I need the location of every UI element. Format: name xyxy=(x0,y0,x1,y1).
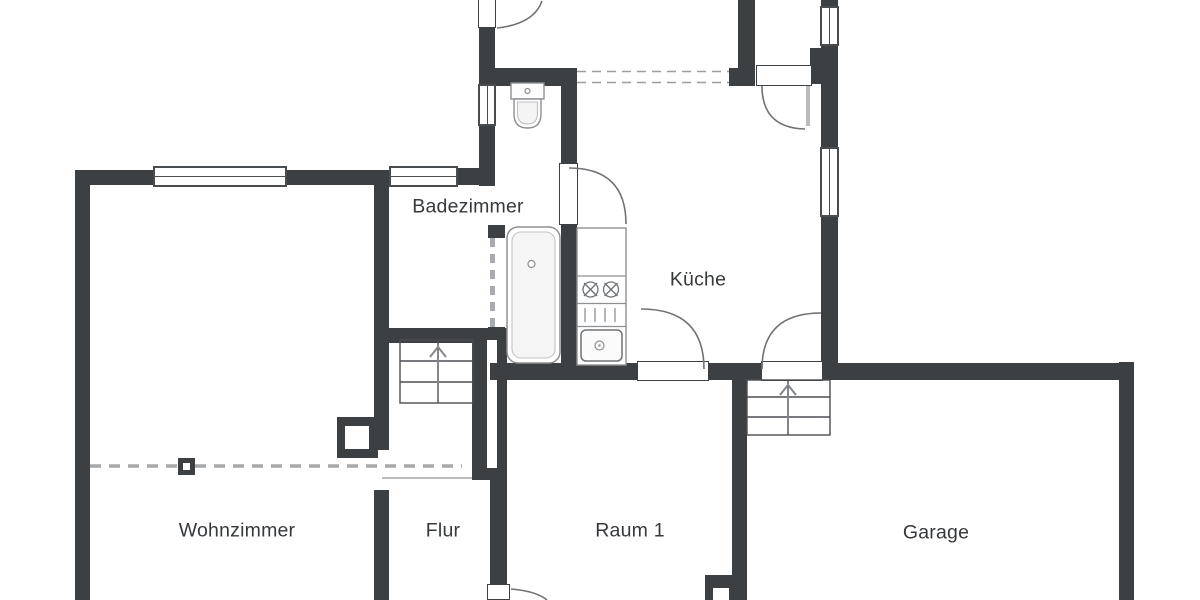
wall-segment xyxy=(75,170,155,185)
chimney-flue xyxy=(345,426,369,449)
wall-segment xyxy=(1119,362,1134,600)
window xyxy=(153,166,287,187)
kitchen-counter xyxy=(577,228,626,365)
room-label-kueche: Küche xyxy=(670,269,726,292)
open-wall-dashes xyxy=(577,72,729,83)
window xyxy=(820,6,839,46)
wall-segment xyxy=(561,225,577,365)
door-leaf xyxy=(637,361,709,381)
room-label-raum1: Raum 1 xyxy=(595,520,664,543)
wall-segment xyxy=(374,490,389,600)
door-leaf xyxy=(559,163,578,225)
room-label-wohnzimmer: Wohnzimmer xyxy=(179,520,296,543)
wall-segment xyxy=(810,48,838,84)
wall-segment xyxy=(490,363,640,380)
room-label-badezimmer: Badezimmer xyxy=(412,196,523,219)
staircase-garage xyxy=(747,380,830,435)
wall-segment xyxy=(561,68,577,165)
wall-segment xyxy=(822,363,1133,380)
window xyxy=(478,84,496,126)
toilet xyxy=(511,83,544,128)
wall-segment xyxy=(738,0,755,84)
wall-cavity xyxy=(487,340,497,468)
drainer-lines xyxy=(585,308,615,322)
open-door-leaf xyxy=(806,86,810,126)
kitchen-sink xyxy=(581,330,622,361)
room-label-garage: Garage xyxy=(903,522,969,545)
wall-segment xyxy=(490,480,507,586)
staircase-flur xyxy=(400,340,473,403)
partition-block xyxy=(488,225,505,238)
door-arcs xyxy=(497,1,821,600)
door-leaf xyxy=(761,361,823,381)
room-label-flur: Flur xyxy=(426,520,460,543)
support-column-core xyxy=(183,463,190,470)
wall-segment xyxy=(75,170,90,600)
window xyxy=(820,147,839,217)
door-leaf xyxy=(478,0,496,28)
wall-segment xyxy=(374,170,389,450)
door-leaf xyxy=(756,65,812,86)
door-leaf xyxy=(487,584,510,600)
bathtub xyxy=(507,227,560,363)
detail-lines xyxy=(0,0,1200,600)
window xyxy=(389,166,458,187)
partition-block xyxy=(488,327,505,339)
wall-segment xyxy=(287,170,375,185)
wall-notch xyxy=(713,588,729,600)
floor-plan: Badezimmer Küche Wohnzimmer Flur Raum 1 … xyxy=(0,0,1200,600)
wall-segment xyxy=(732,378,747,600)
stove-burners xyxy=(583,282,619,297)
